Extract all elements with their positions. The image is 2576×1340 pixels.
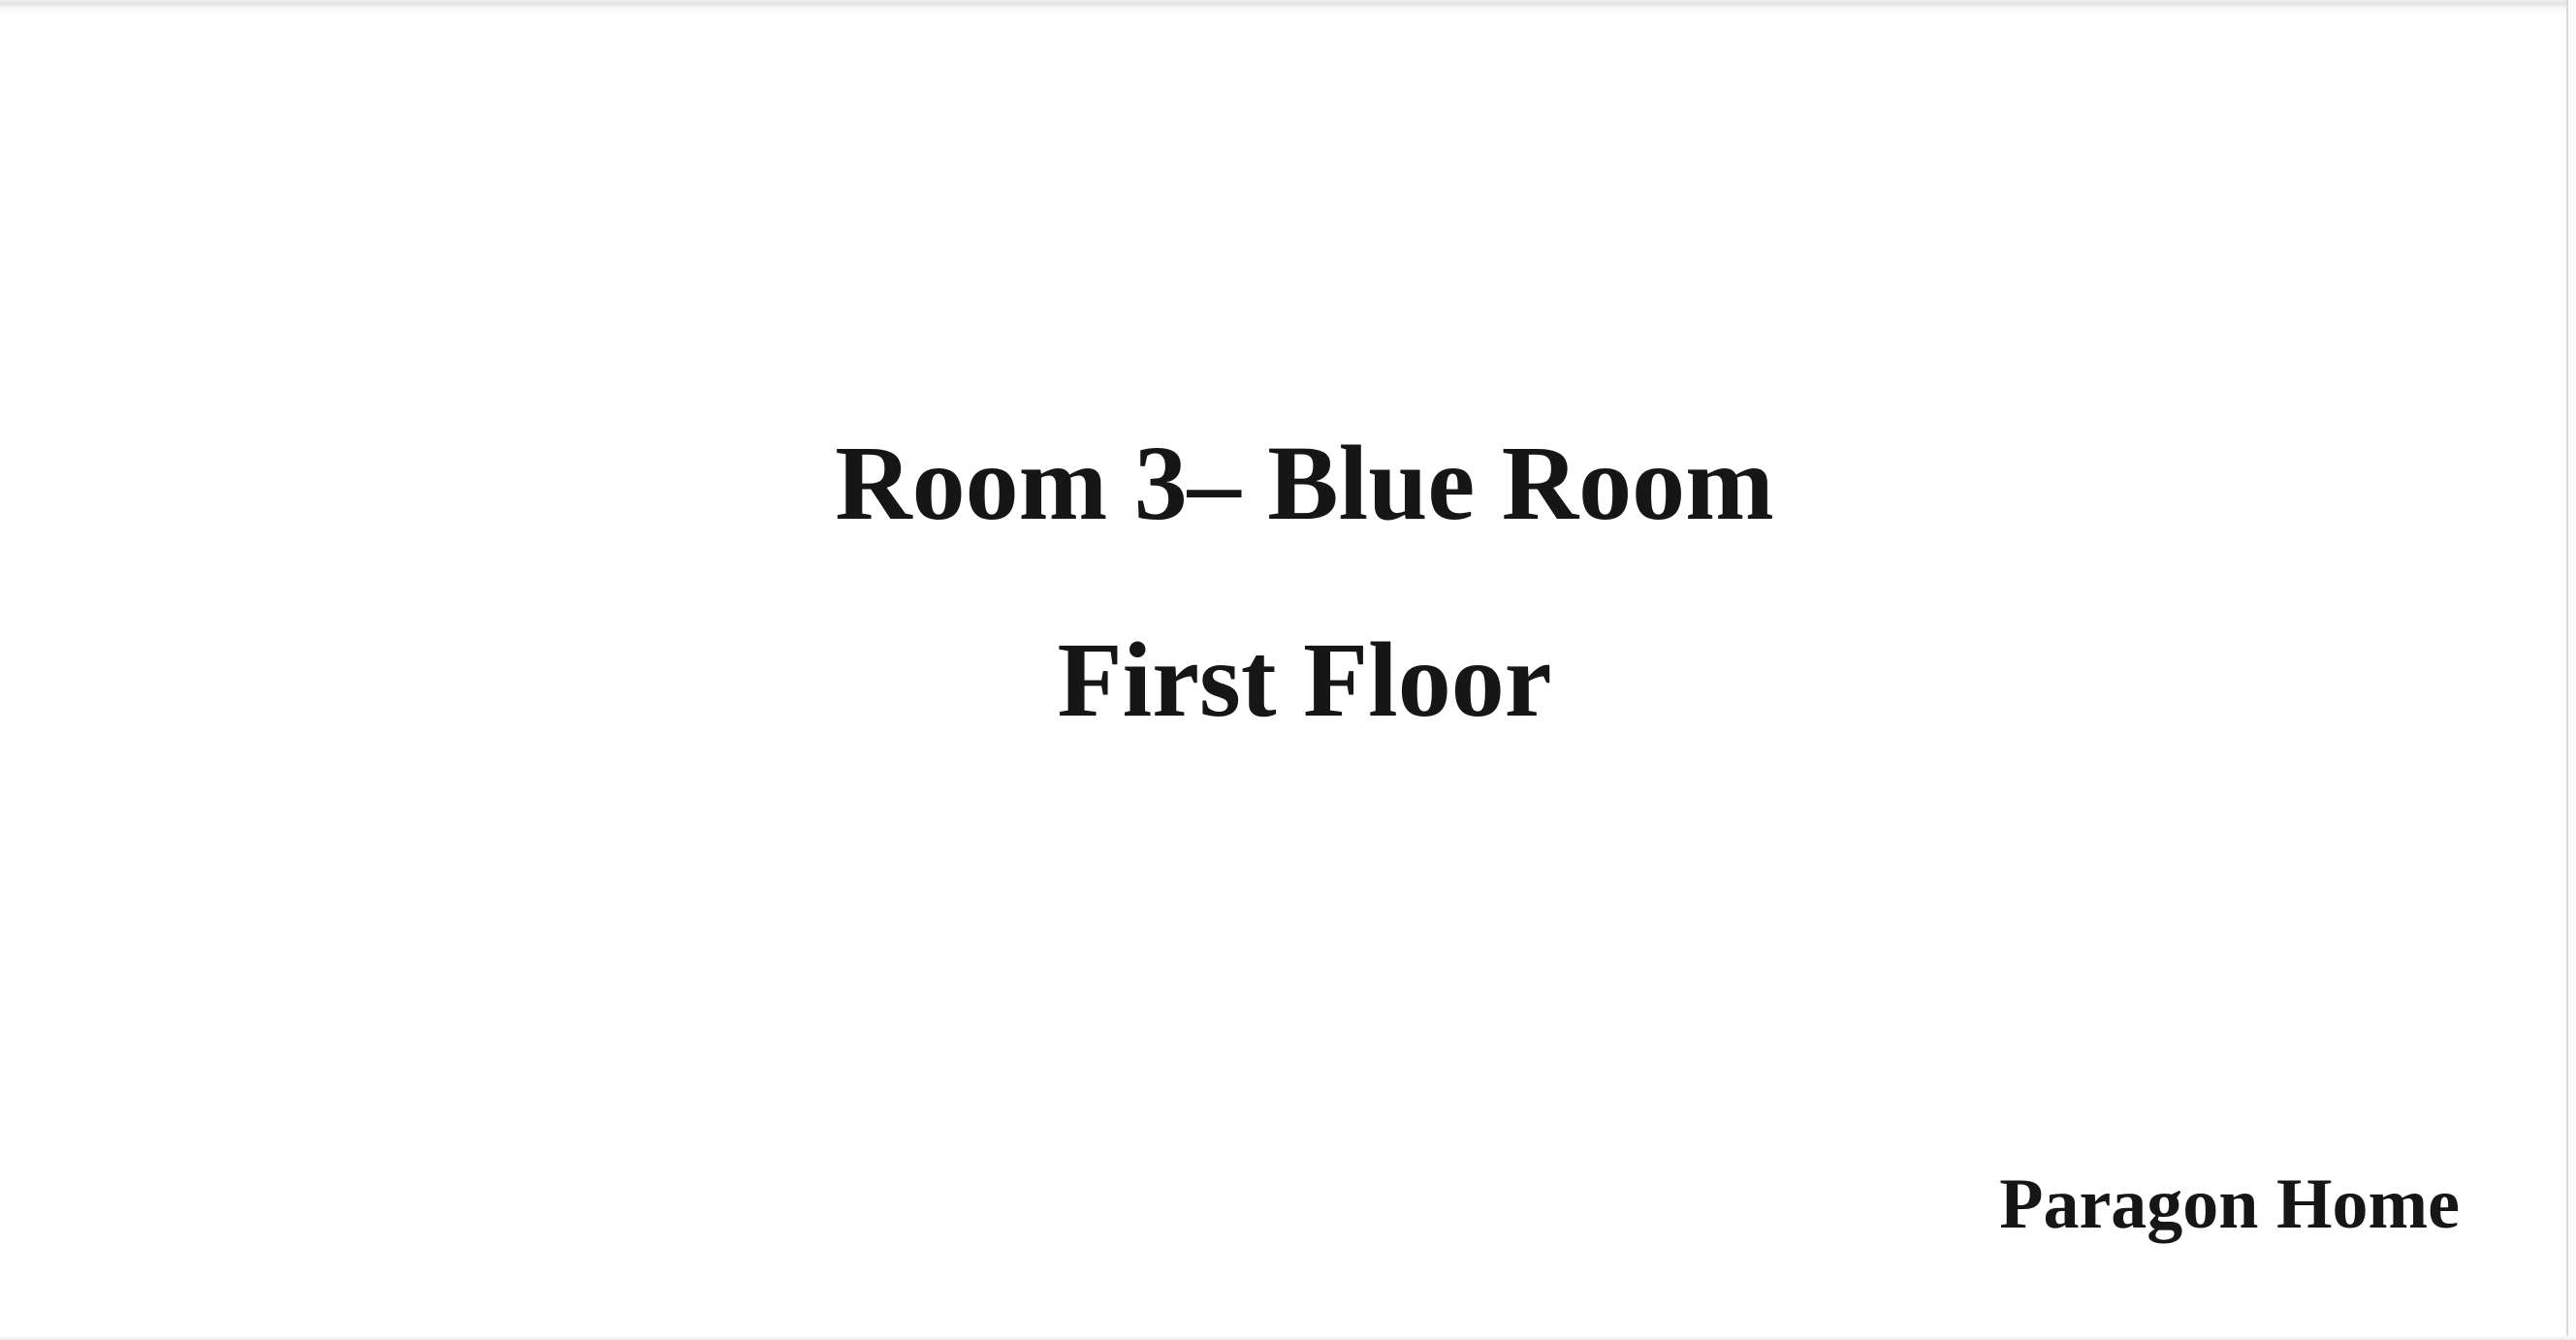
canvas-bottom-edge [0,1336,2576,1340]
slide-heading-line-1: Room 3– Blue Room [16,430,2576,536]
slide-heading-line-2: First Floor [16,626,2576,733]
slide-canvas: Room 3– Blue Room First Floor Paragon Ho… [0,0,2576,1340]
canvas-top-edge [0,0,2576,14]
slide-footer-label: Paragon Home [1999,1168,2460,1240]
